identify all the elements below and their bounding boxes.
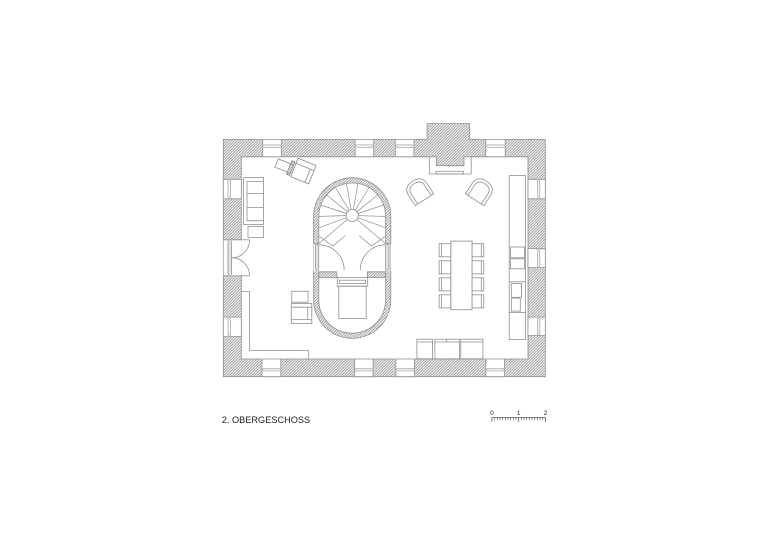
- svg-text:1: 1: [517, 410, 521, 417]
- svg-text:2. OBERGESCHOSS: 2. OBERGESCHOSS: [222, 415, 310, 425]
- svg-text:2: 2: [544, 410, 548, 417]
- svg-text:0: 0: [490, 410, 494, 417]
